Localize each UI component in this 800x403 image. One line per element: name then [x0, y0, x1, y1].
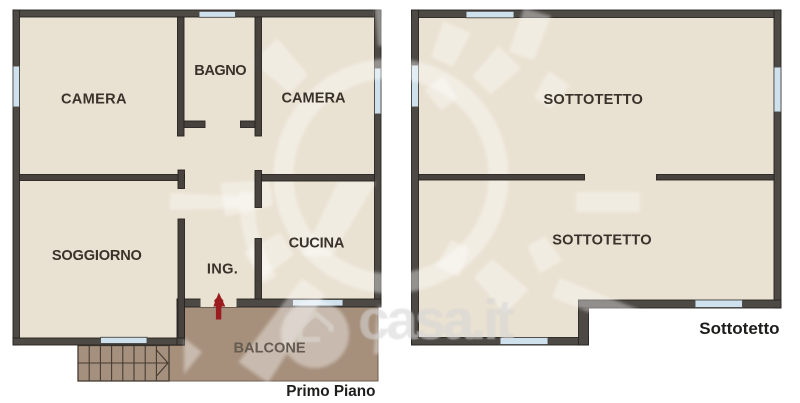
svg-text:ING.: ING.	[207, 262, 238, 278]
svg-text:casa.it: casa.it	[358, 288, 514, 352]
svg-text:BAGNO: BAGNO	[194, 63, 246, 79]
svg-text:CAMERA: CAMERA	[281, 91, 346, 107]
svg-text:SOTTOTETTO: SOTTOTETTO	[552, 233, 652, 249]
svg-text:CAMERA: CAMERA	[61, 92, 127, 108]
svg-text:Primo Piano: Primo Piano	[286, 383, 375, 400]
svg-text:SOGGIORNO: SOGGIORNO	[52, 248, 142, 264]
svg-text:Sottotetto: Sottotetto	[699, 319, 779, 338]
svg-text:CUCINA: CUCINA	[289, 236, 345, 252]
svg-text:SOTTOTETTO: SOTTOTETTO	[544, 92, 644, 108]
svg-text:BALCONE: BALCONE	[234, 341, 306, 357]
